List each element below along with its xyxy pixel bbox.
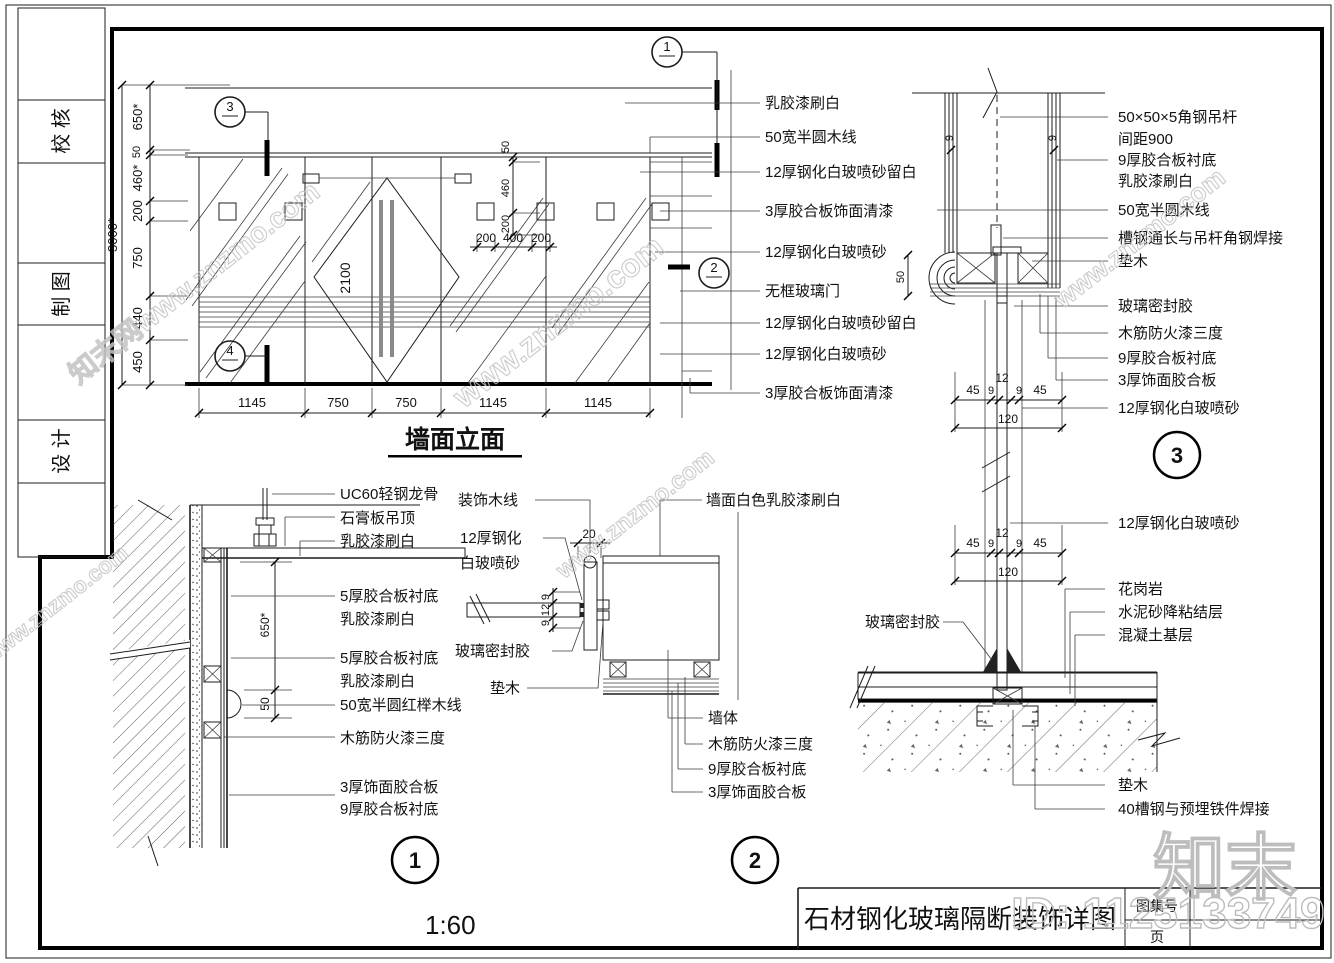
svg-text:200: 200 [130,200,145,222]
svg-text:12: 12 [995,526,1009,540]
wall-bottom-boards [603,662,719,694]
detail-2-number: 2 [732,837,778,883]
detail1-labels: UC60轻钢龙骨 石膏板吊顶 乳胶漆刷白 5厚胶合板衬底 乳胶漆刷白 5厚胶合板… [340,486,462,818]
elevation-bottom-dims: 1145 750 750 1145 1145 [195,388,654,418]
callout-3: 3 [215,97,268,140]
svg-text:3厚饰面胶合板: 3厚饰面胶合板 [708,783,806,801]
concrete-base [858,702,1157,772]
svg-text:12厚钢化白玻喷砂留白: 12厚钢化白玻喷砂留白 [765,164,917,181]
elevation-title: 墙面立面 [388,425,522,458]
svg-text:白玻喷砂: 白玻喷砂 [460,555,520,572]
svg-text:50宽半圆木线: 50宽半圆木线 [765,129,857,146]
svg-text:9: 9 [988,385,994,397]
svg-text:墙面白色乳胶漆刷白: 墙面白色乳胶漆刷白 [706,492,841,509]
svg-text:9: 9 [988,538,994,550]
svg-text:650*: 650* [130,104,145,131]
svg-text:3厚胶合板饰面清漆: 3厚胶合板饰面清漆 [765,202,893,220]
door-handle [390,200,394,357]
wall-body-hatch [603,563,719,660]
svg-text:9厚胶合板衬底: 9厚胶合板衬底 [1118,349,1216,367]
callout-4: 4 [215,341,267,371]
svg-text:4: 4 [226,343,233,358]
svg-text:9: 9 [1016,385,1022,397]
watermark-text: www.znzmo.com [0,540,133,669]
svg-text:9: 9 [540,620,552,626]
svg-text:石膏板吊顶: 石膏板吊顶 [340,509,415,527]
svg-text:50: 50 [131,146,143,158]
svg-text:45: 45 [966,383,980,397]
svg-text:9厚胶合板衬底: 9厚胶合板衬底 [708,760,806,778]
svg-text:乳胶漆刷白: 乳胶漆刷白 [340,611,415,628]
svg-text:乳胶漆刷白: 乳胶漆刷白 [340,533,415,550]
svg-text:9: 9 [540,594,552,600]
svg-text:2: 2 [710,260,717,275]
svg-text:1: 1 [663,39,670,54]
svg-text:12厚钢化白玻喷砂: 12厚钢化白玻喷砂 [765,244,887,261]
svg-text:3厚饰面胶合板: 3厚饰面胶合板 [340,778,438,796]
svg-text:50: 50 [500,141,512,153]
glass-shading [186,159,652,383]
cad-sheet: 校 核 制 图 设 计 [0,0,1334,963]
svg-text:12厚钢化白玻喷砂留白: 12厚钢化白玻喷砂留白 [765,315,917,332]
svg-text:垫木: 垫木 [1118,777,1148,794]
svg-text:12: 12 [540,604,552,616]
svg-text:3: 3 [1171,443,1183,468]
frameless-glass-door [303,174,471,382]
watermark-text: www.znzmo.com [550,444,719,584]
svg-text:9: 9 [1047,135,1059,141]
sealant-wedge [1007,648,1021,672]
uc60-channel [254,534,276,546]
detail1-leaders [224,494,335,795]
detail-2-section: 20 9 12 9 [455,492,841,883]
svg-text:12厚钢化白玻喷砂: 12厚钢化白玻喷砂 [1118,400,1240,417]
wall-paint-layer [603,556,719,563]
svg-text:9厚胶合板衬底: 9厚胶合板衬底 [1118,151,1216,169]
svg-text:9: 9 [944,135,956,141]
drawing-canvas: 校 核 制 图 设 计 [0,0,1334,963]
molding-assembly [204,666,241,738]
gypsum-board [202,548,465,558]
svg-text:花岗岩: 花岗岩 [1118,581,1163,598]
svg-text:120: 120 [998,565,1018,579]
svg-text:750: 750 [130,247,145,269]
svg-text:装饰木线: 装饰木线 [458,492,518,509]
svg-text:9厚胶合板衬底: 9厚胶合板衬底 [340,800,438,818]
svg-text:乳胶漆刷白: 乳胶漆刷白 [765,95,840,112]
detail1-dims: 650* 50 [240,558,292,722]
door-handle [379,200,383,357]
svg-text:间距900: 间距900 [1118,131,1173,148]
detail-1-number: 1 [392,837,438,883]
detail2-leaders [527,500,738,792]
svg-text:45: 45 [1033,383,1047,397]
svg-text:玻璃密封胶: 玻璃密封胶 [1118,298,1193,315]
svg-text:玻璃密封胶: 玻璃密封胶 [455,643,530,660]
svg-text:650*: 650* [258,612,272,637]
svg-text:5厚胶合板衬底: 5厚胶合板衬底 [340,587,438,605]
svg-text:45: 45 [966,536,980,550]
svg-text:750: 750 [395,395,417,410]
elevation-labels: 乳胶漆刷白 50宽半圆木线 12厚钢化白玻喷砂留白 3厚胶合板饰面清漆 12厚钢… [765,95,917,402]
callout-1: 1 [652,37,717,67]
door-height-dim: 2100 [337,262,353,293]
svg-text:750: 750 [327,395,349,410]
floor-junction [850,648,1180,772]
scale-note: 1:60 [425,910,476,940]
svg-text:50宽半圆红榉木线: 50宽半圆红榉木线 [340,697,462,714]
svg-text:40槽钢与预埋铁件焊接: 40槽钢与预埋铁件焊接 [1118,801,1270,818]
break-mark [470,594,490,624]
signature-column: 校 核 制 图 设 计 [18,8,105,557]
svg-text:3000*: 3000* [105,218,120,252]
svg-text:3厚胶合板饰面清漆: 3厚胶合板饰面清漆 [765,384,893,402]
svg-text:3: 3 [226,99,233,114]
svg-text:12厚钢化: 12厚钢化 [460,530,522,547]
svg-text:12: 12 [995,371,1009,385]
svg-text:50: 50 [258,697,272,711]
svg-text:玻璃密封胶: 玻璃密封胶 [865,614,940,631]
svg-text:460*: 460* [130,165,145,192]
svg-text:200: 200 [476,231,496,245]
glass-dims-upper: 45 9 12 9 45 120 [951,371,1066,432]
svg-text:混凝土基层: 混凝土基层 [1118,627,1193,644]
glass-column [982,296,1022,690]
svg-text:木筋防火漆三度: 木筋防火漆三度 [708,736,813,753]
half-round-molding [227,690,241,718]
svg-text:50: 50 [895,271,907,283]
svg-text:45: 45 [1033,536,1047,550]
draft-label: 制 图 [50,271,73,317]
svg-text:12厚钢化白玻喷砂: 12厚钢化白玻喷砂 [765,346,887,363]
svg-text:墙面立面: 墙面立面 [405,425,505,454]
glass-dims-lower: 45 9 12 9 45 120 [951,525,1066,585]
detail-1-section: 650* 50 UC60轻钢龙骨 石膏板吊顶 乳胶漆刷白 5厚胶合板衬底 乳胶漆… [110,486,465,883]
svg-text:木筋防火漆三度: 木筋防火漆三度 [340,730,445,747]
svg-text:450: 450 [130,351,145,373]
svg-text:乳胶漆刷白: 乳胶漆刷白 [340,673,415,690]
svg-text:120: 120 [998,412,1018,426]
callout-2: 2 [699,258,729,288]
svg-text:1: 1 [409,848,421,873]
svg-text:无框玻璃门: 无框玻璃门 [765,283,840,300]
svg-text:水泥砂降粘结层: 水泥砂降粘结层 [1118,604,1223,621]
svg-text:垫木: 垫木 [490,680,520,697]
svg-text:1145: 1145 [238,395,266,410]
svg-text:墙体: 墙体 [708,710,738,727]
wood-trim [584,562,597,650]
detail-3-number: 3 [1154,432,1200,478]
svg-text:9: 9 [1016,538,1022,550]
watermark-id: ID: 1125133749 [1011,889,1324,938]
svg-text:200: 200 [531,231,551,245]
plaster-layer [190,505,202,848]
watermark-text: 知末网www.znzmo.com [62,175,325,390]
svg-text:1145: 1145 [584,395,612,410]
svg-text:木筋防火漆三度: 木筋防火漆三度 [1118,325,1223,342]
svg-text:12厚钢化白玻喷砂: 12厚钢化白玻喷砂 [1118,515,1240,532]
svg-text:3厚饰面胶合板: 3厚饰面胶合板 [1118,371,1216,389]
svg-text:50×50×5角钢吊杆: 50×50×5角钢吊杆 [1118,109,1237,126]
svg-text:5厚胶合板衬底: 5厚胶合板衬底 [340,649,438,667]
door-pivot-block [455,174,471,183]
detail2-labels: 装饰木线 12厚钢化 白玻喷砂 玻璃密封胶 垫木 墙面白色乳胶漆刷白 墙体 木筋… [455,492,841,801]
check-label: 校 核 [50,108,73,154]
svg-text:200: 200 [500,215,512,233]
design-label: 设 计 [50,428,73,474]
glass-thickness-dims: 9 12 9 [540,588,580,632]
svg-text:UC60轻钢龙骨: UC60轻钢龙骨 [340,486,438,503]
svg-text:460: 460 [500,179,512,197]
svg-text:2: 2 [749,848,761,873]
